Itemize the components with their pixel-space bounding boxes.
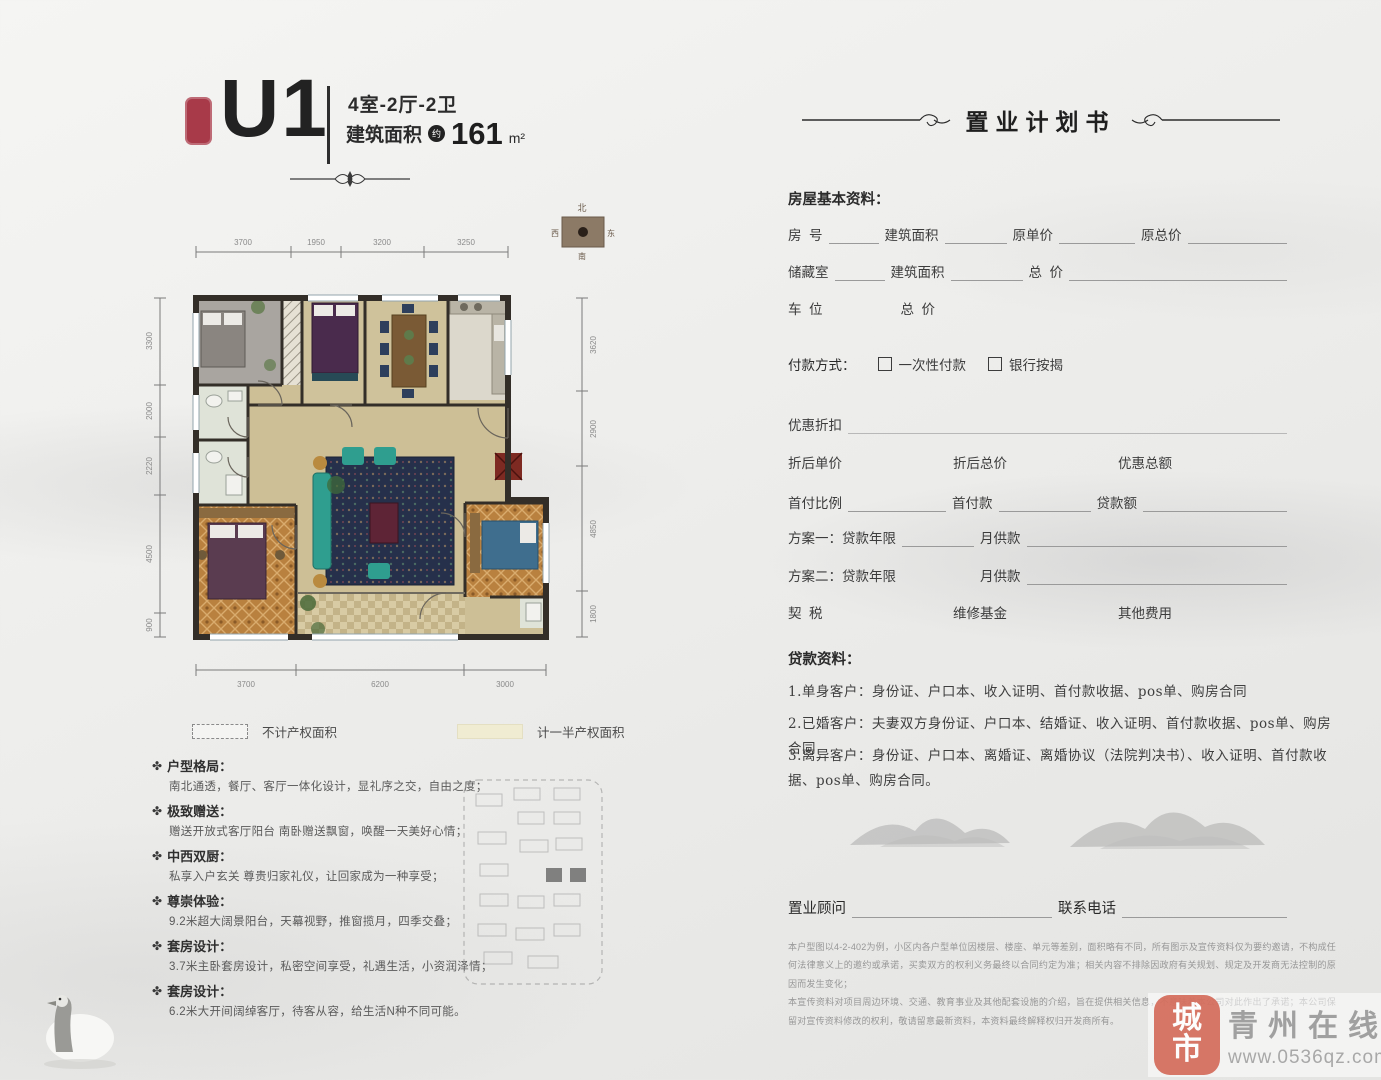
field-label: 月供款: [980, 527, 1021, 547]
watermark-seal-char: 城: [1172, 1004, 1202, 1035]
field-label: 房 号: [788, 224, 823, 244]
field-label: 建筑面积: [885, 224, 939, 244]
svg-text:3300: 3300: [145, 332, 154, 350]
ornament-flourish: [285, 168, 415, 190]
flower-icon: ✤: [152, 894, 162, 908]
field-label: 折后总价: [953, 452, 1118, 472]
flower-icon: ✤: [152, 759, 162, 773]
field-blank[interactable]: [945, 229, 1007, 244]
svg-text:3700: 3700: [237, 680, 255, 689]
field-label: 维修基金: [953, 602, 1118, 622]
field-blank[interactable]: [1122, 903, 1287, 918]
feature-desc: 6.2米大开间阔绰客厅，待客从容，给生活N种不同可能。: [169, 1003, 502, 1019]
field-label: 贷款年限: [842, 565, 896, 585]
field-label: 原单价: [1013, 224, 1054, 244]
form-row-fees: 契 税 维修基金 其他费用: [788, 602, 1293, 622]
unit-spec: 4室-2厅-2卫: [348, 90, 457, 117]
basic-info-title: 房屋基本资料：: [788, 188, 890, 209]
svg-text:东: 东: [607, 228, 615, 238]
feature-desc: 9.2米超大阔景阳台，天幕视野，推窗揽月，四季交叠；: [169, 913, 502, 929]
phone-label: 联系电话: [1058, 897, 1116, 918]
feature-title: 套房设计：: [167, 981, 232, 1000]
swan-image: [22, 968, 132, 1073]
legend-swatch-dashed: [192, 724, 248, 739]
field-label: 首付比例: [788, 492, 842, 512]
svg-text:4500: 4500: [145, 545, 154, 563]
payment-option: 一次性付款: [899, 354, 967, 374]
svg-text:西: 西: [551, 229, 559, 238]
form-row-payment: 付款方式： 一次性付款 银行按揭: [788, 354, 1293, 374]
feature-item: ✤套房设计： 6.2米大开间阔绰客厅，待客从容，给生活N种不同可能。: [152, 981, 502, 1019]
flourish-left-icon: [802, 109, 952, 131]
field-label: 总 价: [901, 298, 936, 318]
field-blank[interactable]: [1027, 532, 1288, 547]
field-label: 车 位: [788, 298, 823, 318]
field-blank[interactable]: [1069, 266, 1287, 281]
approx-badge: 约: [428, 125, 445, 142]
legend-label: 不计产权面积: [262, 722, 337, 741]
unit-area: 建筑面积 约 161 m²: [346, 118, 525, 149]
form-row-discount: 优惠折扣: [788, 414, 1293, 434]
form-row-basic-3: 车 位 总 价: [788, 298, 1293, 318]
feature-desc: 南北通透，餐厅、客厅一体化设计，显礼序之交，自由之度；: [169, 778, 502, 794]
field-label: 总 价: [1029, 261, 1064, 281]
form-row-discounted: 折后单价 折后总价 优惠总额: [788, 452, 1293, 472]
form-row-plan1: 方案一： 贷款年限 月供款: [788, 527, 1293, 547]
field-blank[interactable]: [1027, 570, 1288, 585]
legend-swatch-yellow: [457, 724, 523, 739]
flower-icon: ✤: [152, 984, 162, 998]
feature-item: ✤套房设计： 3.7米主卧套房设计，私密空间享受，礼遇生活，小资润泽情；: [152, 936, 502, 974]
feature-title: 极致赠送：: [167, 801, 232, 820]
field-label: 优惠总额: [1118, 452, 1172, 472]
svg-text:3620: 3620: [589, 336, 598, 354]
svg-text:1950: 1950: [307, 238, 325, 247]
mountains-image: [840, 783, 1280, 863]
checkbox-mortgage[interactable]: [988, 357, 1002, 371]
field-blank[interactable]: [848, 419, 1287, 434]
brochure-page: { "header": { "unit": "U1", "spec": "4室-…: [0, 0, 1381, 1080]
unit-name: U1: [220, 68, 329, 150]
floor-plan: 北 西 东 南: [130, 195, 630, 705]
svg-text:北: 北: [577, 203, 586, 213]
svg-text:3000: 3000: [496, 680, 514, 689]
field-label: 契 税: [788, 602, 953, 622]
svg-text:1800: 1800: [589, 605, 598, 623]
disclaimer-paragraph-1: 本户型图以4-2-402为例，小区内各户型单位因楼层、楼座、单元等差别，面积略有…: [788, 938, 1336, 993]
site-watermark: 城 市 青州在线 www.0536qz.com: [1148, 993, 1381, 1077]
svg-text:南: 南: [578, 251, 586, 261]
feature-item: ✤尊崇体验： 9.2米超大阔景阳台，天幕视野，推窗揽月，四季交叠；: [152, 891, 502, 929]
field-label: 原总价: [1141, 224, 1182, 244]
field-blank[interactable]: [829, 229, 879, 244]
field-blank[interactable]: [1188, 229, 1287, 244]
field-label: 建筑面积: [891, 261, 945, 281]
wardrobe: [282, 298, 302, 385]
svg-text:2000: 2000: [145, 402, 154, 420]
flower-icon: ✤: [152, 804, 162, 818]
checkbox-full-payment[interactable]: [878, 357, 892, 371]
feature-desc: 赠送开放式客厅阳台 南卧赠送飘窗，唤醒一天美好心情；: [169, 823, 502, 839]
area-value: 161: [451, 118, 503, 149]
field-label: 优惠折扣: [788, 414, 842, 434]
compass-icon: 北 西 东 南: [551, 203, 615, 261]
red-seal-icon: [185, 97, 212, 145]
field-blank[interactable]: [852, 903, 1052, 918]
feature-title: 中西双厨：: [167, 846, 232, 865]
field-label: 其他费用: [1118, 602, 1172, 622]
feature-item: ✤户型格局： 南北通透，餐厅、客厅一体化设计，显礼序之交，自由之度；: [152, 756, 502, 794]
watermark-seal-icon: 城 市: [1154, 995, 1220, 1075]
field-blank[interactable]: [848, 497, 946, 512]
svg-text:2900: 2900: [589, 420, 598, 438]
payment-option: 银行按揭: [1009, 354, 1063, 374]
field-label: 折后单价: [788, 452, 953, 472]
watermark-seal-char: 市: [1172, 1035, 1202, 1066]
field-label: 月供款: [980, 565, 1021, 585]
form-row-basic-2: 储藏室 建筑面积 总 价: [788, 261, 1293, 281]
area-unit: m²: [509, 130, 525, 146]
field-blank[interactable]: [999, 497, 1091, 512]
payment-label: 付款方式：: [788, 354, 856, 374]
field-label: 贷款年限: [842, 527, 896, 547]
svg-text:900: 900: [145, 618, 154, 632]
feature-list: ✤户型格局： 南北通透，餐厅、客厅一体化设计，显礼序之交，自由之度； ✤极致赠送…: [152, 756, 502, 1026]
svg-text:3250: 3250: [457, 238, 475, 247]
svg-text:3700: 3700: [234, 238, 252, 247]
svg-text:6200: 6200: [371, 680, 389, 689]
feature-title: 套房设计：: [167, 936, 232, 955]
plan-legend: 不计产权面积 计一半产权面积: [192, 722, 625, 741]
field-blank[interactable]: [1059, 229, 1135, 244]
watermark-url: www.0536qz.com: [1228, 1047, 1381, 1069]
feature-item: ✤极致赠送： 赠送开放式客厅阳台 南卧赠送飘窗，唤醒一天美好心情；: [152, 801, 502, 839]
flourish-right-icon: [1130, 109, 1280, 131]
svg-text:4850: 4850: [589, 520, 598, 538]
legend-label: 计一半产权面积: [537, 722, 625, 741]
flower-icon: ✤: [152, 849, 162, 863]
title-divider: [327, 86, 330, 164]
form-header: 置业计划书: [788, 103, 1293, 137]
feature-desc: 私享入户玄关 尊贵归家礼仪，让回家成为一种享受；: [169, 868, 502, 884]
field-label: 储藏室: [788, 261, 829, 281]
watermark-name: 青州在线: [1228, 1001, 1381, 1045]
form-row-basic-1: 房 号 建筑面积 原单价 原总价: [788, 224, 1293, 244]
feature-desc: 3.7米主卧套房设计，私密空间享受，礼遇生活，小资润泽情；: [169, 958, 502, 974]
plan-label: 方案二：: [788, 565, 842, 585]
flower-icon: ✤: [152, 939, 162, 953]
form-row-consultant: 置业顾问 联系电话: [788, 897, 1293, 918]
field-label: 首付款: [952, 492, 993, 512]
field-blank[interactable]: [951, 266, 1023, 281]
area-label: 建筑面积: [346, 120, 422, 147]
field-blank[interactable]: [835, 266, 885, 281]
loan-info-title: 贷款资料：: [788, 648, 861, 669]
svg-text:2220: 2220: [145, 457, 154, 475]
field-blank[interactable]: [1143, 497, 1287, 512]
loan-item-1: 1.单身客户：身份证、户口本、收入证明、首付款收据、pos单、购房合同: [788, 680, 1336, 705]
site-key-plan: [458, 776, 608, 991]
field-label: 贷款额: [1097, 492, 1138, 512]
feature-title: 尊崇体验：: [167, 891, 232, 910]
svg-text:3200: 3200: [373, 238, 391, 247]
plan-label: 方案一：: [788, 527, 842, 547]
form-row-plan2: 方案二： 贷款年限 月供款: [788, 565, 1293, 585]
field-blank[interactable]: [902, 532, 974, 547]
form-row-downpayment: 首付比例 首付款 贷款额: [788, 492, 1293, 512]
feature-item: ✤中西双厨： 私享入户玄关 尊贵归家礼仪，让回家成为一种享受；: [152, 846, 502, 884]
form-title: 置业计划书: [966, 103, 1116, 137]
consultant-label: 置业顾问: [788, 897, 846, 918]
feature-title: 户型格局：: [167, 756, 232, 775]
